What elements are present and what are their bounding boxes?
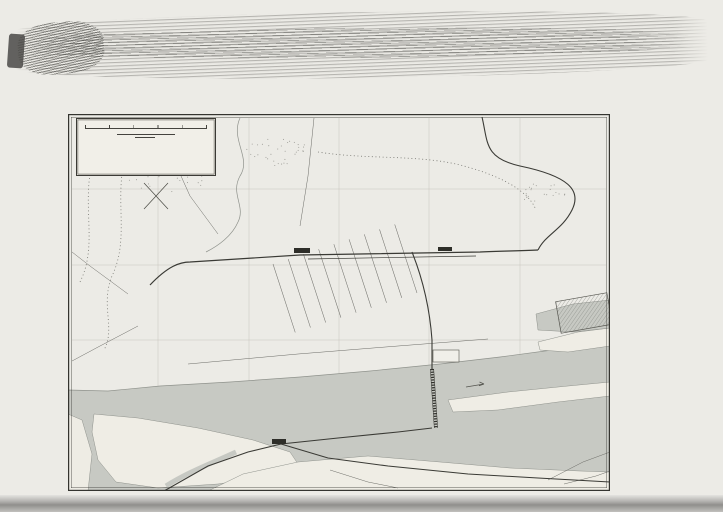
zollhafen-basin bbox=[433, 350, 459, 362]
page-curl-artifact bbox=[16, 12, 708, 78]
railway-ludwigsbahn bbox=[482, 117, 575, 250]
kilometer-bar bbox=[117, 132, 175, 135]
compass-rose bbox=[144, 183, 168, 209]
legend-row bbox=[135, 137, 158, 138]
title-cartouche bbox=[76, 118, 216, 176]
scale-bar bbox=[85, 125, 207, 129]
tram-line-sample bbox=[135, 137, 155, 138]
zentral-bahnhof-symbol bbox=[294, 248, 310, 253]
page-bottom-shadow bbox=[0, 495, 723, 512]
scan-edge-blob bbox=[7, 33, 25, 68]
street-network bbox=[273, 224, 417, 332]
scanned-page: { "page": { "imprint": "Bibliographische… bbox=[0, 0, 723, 512]
taunus-bahnhof-symbol bbox=[272, 439, 286, 444]
gueter-bahnhof-symbol bbox=[438, 247, 452, 251]
